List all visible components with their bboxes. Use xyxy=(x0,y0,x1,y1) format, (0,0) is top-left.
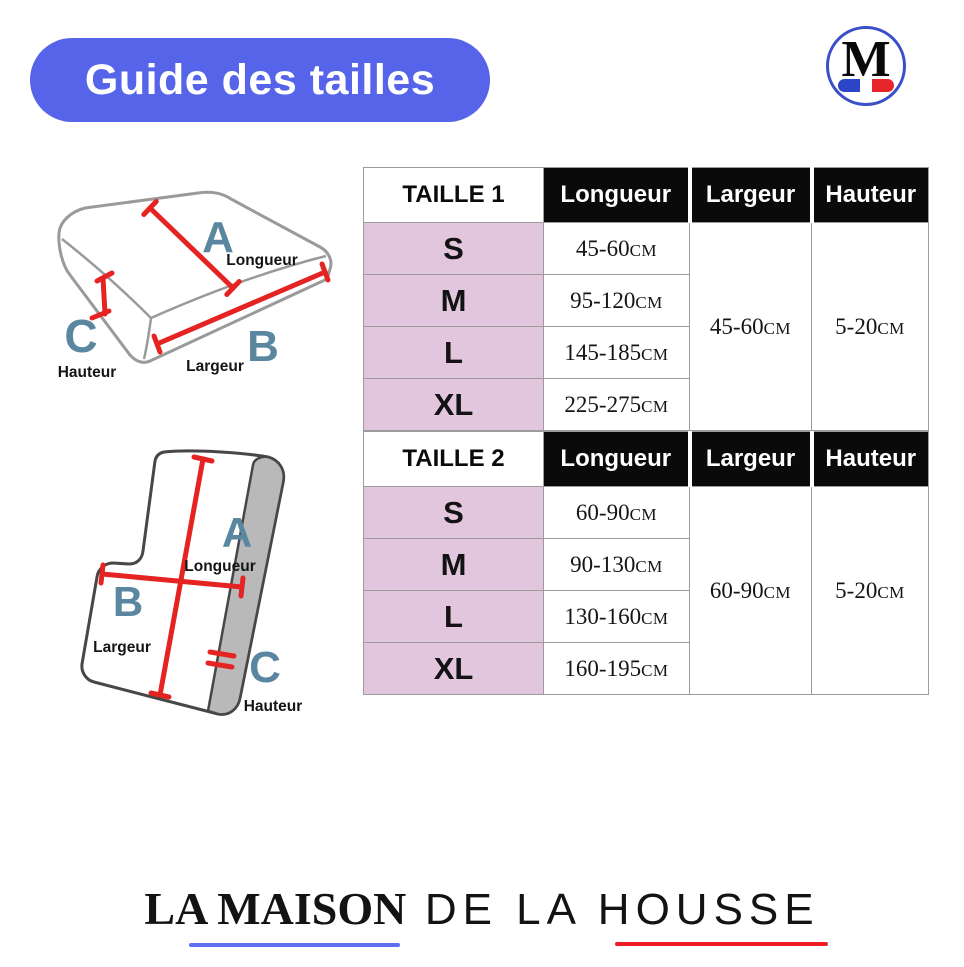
table2-title: TAILLE 2 xyxy=(364,432,544,487)
footer-logo-light: DE LA HOUSSE xyxy=(425,885,820,934)
longueur-value: 160-195CM xyxy=(544,643,690,695)
diagram2-letter-b: B xyxy=(113,578,143,625)
hauteur-value-merged: 5-20CM xyxy=(812,487,929,695)
flag-white-segment xyxy=(860,79,872,92)
footer-underline-blue xyxy=(189,943,400,947)
hauteur-value-merged: 5-20CM xyxy=(812,223,929,431)
diagram2-label-hauteur: Hauteur xyxy=(244,698,303,715)
diagram1-letter-c: C xyxy=(64,310,97,362)
rectangular-cushion-diagram: A Longueur B Largeur C Hauteur xyxy=(30,180,360,400)
longueur-value: 145-185CM xyxy=(544,327,690,379)
brand-badge: M xyxy=(826,26,906,106)
size-label: L xyxy=(364,327,544,379)
table2-header-row: TAILLE 2 Longueur Largeur Hauteur xyxy=(364,432,929,487)
table1-header-row: TAILLE 1 Longueur Largeur Hauteur xyxy=(364,168,929,223)
table1-row-s: S 45-60CM 45-60CM 5-20CM xyxy=(364,223,929,275)
flag-blue-segment xyxy=(838,79,860,92)
table1-title: TAILLE 1 xyxy=(364,168,544,223)
diagram1-letter-b: B xyxy=(247,322,279,371)
table2-header-longueur: Longueur xyxy=(544,432,690,487)
diagram2-label-longueur: Longueur xyxy=(184,558,255,575)
table2-row-s: S 60-90CM 60-90CM 5-20CM xyxy=(364,487,929,539)
footer-underline-red xyxy=(615,942,828,946)
diagram2-label-largeur: Largeur xyxy=(93,639,151,656)
diagram1-label-largeur: Largeur xyxy=(186,358,244,375)
size-label: M xyxy=(364,539,544,591)
diagram2-letter-c: C xyxy=(249,643,281,692)
flag-red-segment xyxy=(872,79,894,92)
longueur-value: 45-60CM xyxy=(544,223,690,275)
largeur-value-merged: 60-90CM xyxy=(690,487,812,695)
longueur-value: 130-160CM xyxy=(544,591,690,643)
longueur-value: 90-130CM xyxy=(544,539,690,591)
table2-header-hauteur: Hauteur xyxy=(812,432,929,487)
diagram1-label-hauteur: Hauteur xyxy=(58,364,117,381)
diagram1-label-longueur: Longueur xyxy=(226,252,297,269)
title-pill: Guide des tailles xyxy=(30,38,490,122)
largeur-value-merged: 45-60CM xyxy=(690,223,812,431)
diagram2-letter-a: A xyxy=(222,509,252,556)
size-table-2: TAILLE 2 Longueur Largeur Hauteur S 60-9… xyxy=(363,431,929,695)
footer-brand-logo: LA MAISON DE LA HOUSSE xyxy=(0,882,964,935)
size-label: XL xyxy=(364,643,544,695)
lshape-cushion-diagram: A Longueur B Largeur C Hauteur xyxy=(60,430,340,730)
table2-header-largeur: Largeur xyxy=(690,432,812,487)
size-tables: TAILLE 1 Longueur Largeur Hauteur S 45-6… xyxy=(363,167,929,695)
longueur-value: 225-275CM xyxy=(544,379,690,431)
longueur-value: 95-120CM xyxy=(544,275,690,327)
size-label: M xyxy=(364,275,544,327)
size-guide-infographic: Guide des tailles M A Longu xyxy=(0,0,964,967)
size-table-1: TAILLE 1 Longueur Largeur Hauteur S 45-6… xyxy=(363,167,929,431)
longueur-value: 60-90CM xyxy=(544,487,690,539)
french-flag-icon xyxy=(838,79,894,92)
footer-logo-bold: LA MAISON xyxy=(144,883,406,934)
table1-header-hauteur: Hauteur xyxy=(812,168,929,223)
size-label: L xyxy=(364,591,544,643)
size-label: S xyxy=(364,487,544,539)
table1-header-largeur: Largeur xyxy=(690,168,812,223)
table1-header-longueur: Longueur xyxy=(544,168,690,223)
size-label: S xyxy=(364,223,544,275)
size-label: XL xyxy=(364,379,544,431)
